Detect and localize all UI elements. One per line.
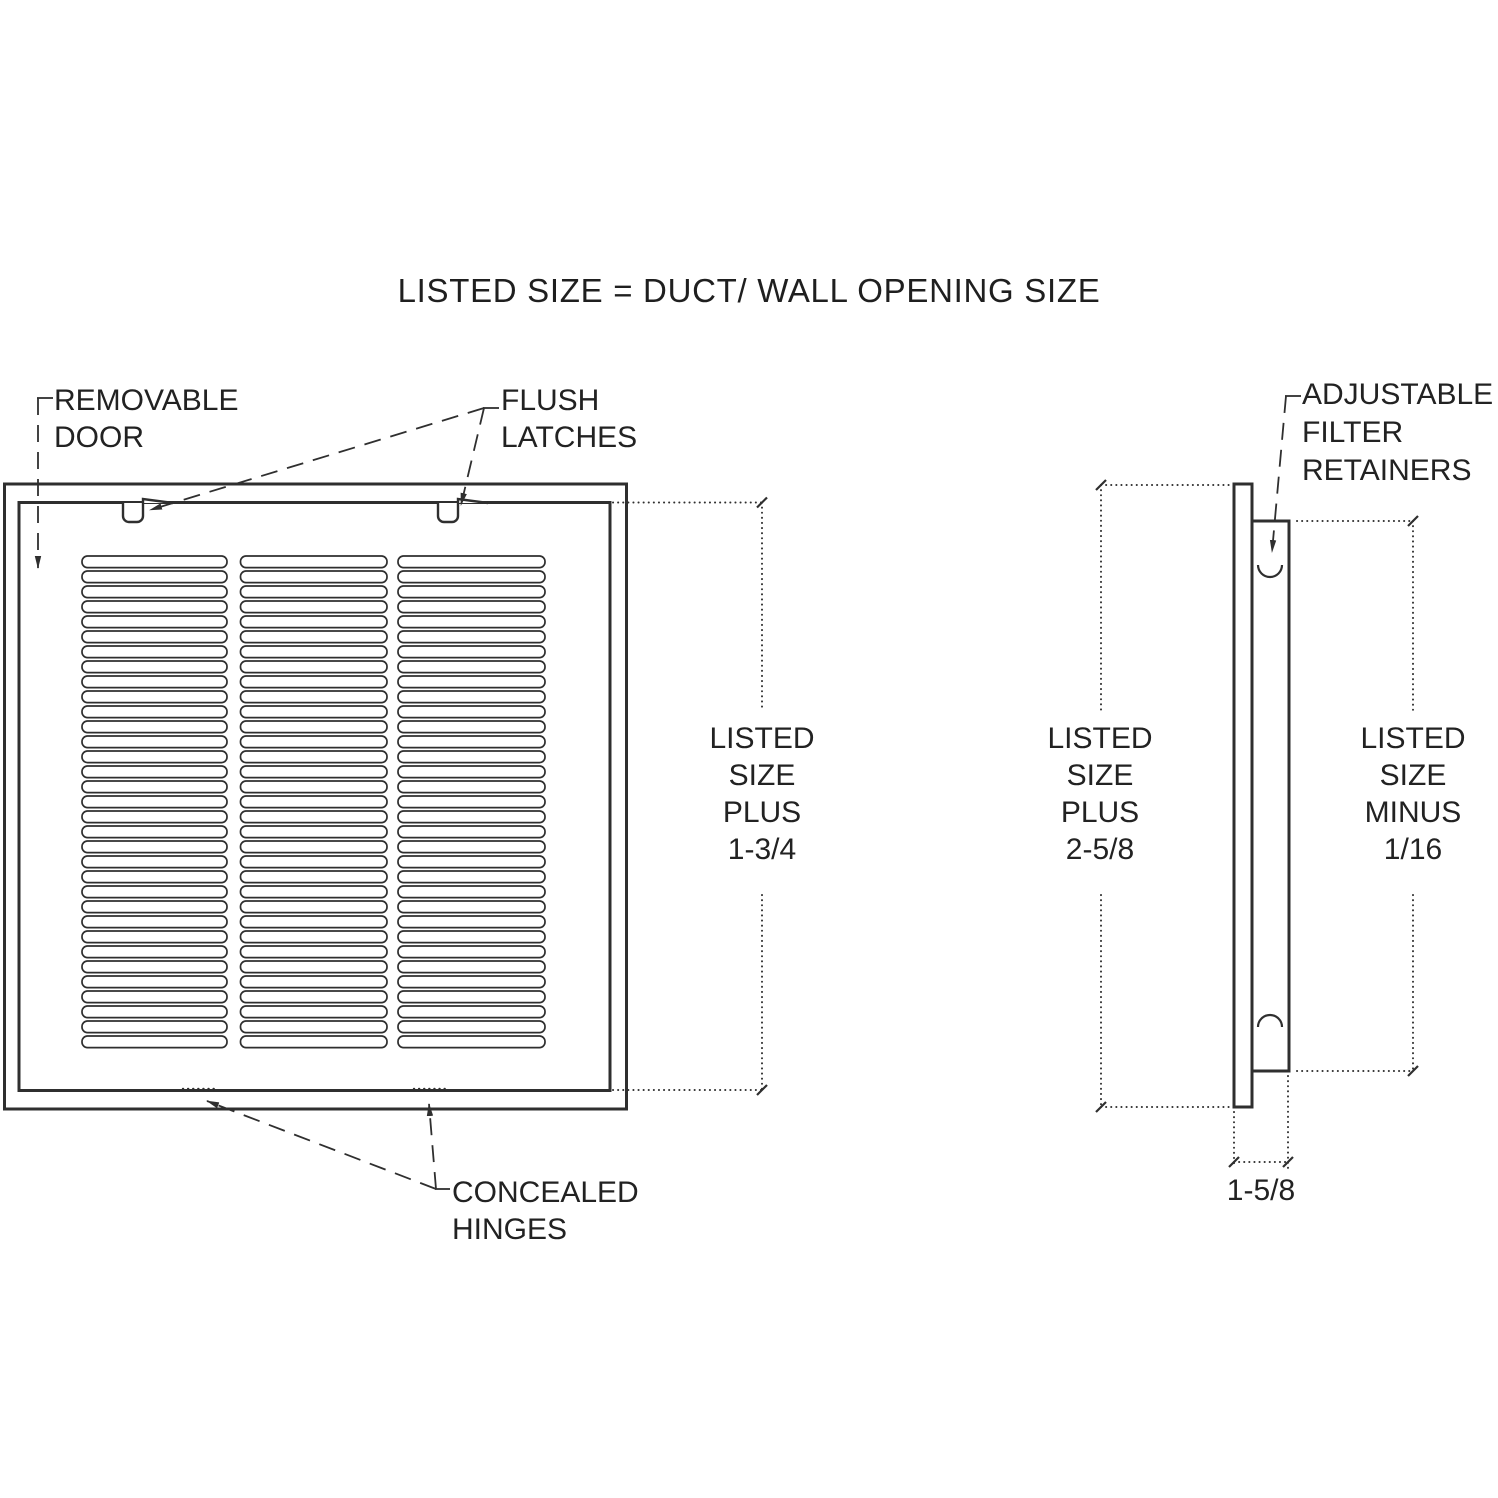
louver-slat [82, 646, 227, 658]
louver-slat [241, 901, 388, 913]
louver-slat [398, 796, 545, 808]
louver-slat [82, 781, 227, 793]
louver-slat [82, 616, 227, 628]
louver-slat [82, 1036, 227, 1048]
louver-slat [241, 706, 388, 718]
side-depth-dimension [1234, 1076, 1288, 1168]
side-filter-dimension-text: LISTED SIZE MINUS 1/16 [1313, 720, 1498, 868]
louver-slat [82, 586, 227, 598]
louver-slat [82, 721, 227, 733]
louver-slat [398, 646, 545, 658]
louver-slat [241, 766, 388, 778]
louver-slat [82, 856, 227, 868]
louver-slat [398, 961, 545, 973]
louver-slat [398, 781, 545, 793]
concealed-hinges-label: CONCEALED HINGES [452, 1174, 639, 1248]
louver-slat [398, 631, 545, 643]
louver-slat [82, 841, 227, 853]
louver-slat [241, 556, 388, 568]
louver-slat [241, 841, 388, 853]
louver-slat [82, 556, 227, 568]
side-depth-dimension-text: 1-5/8 [1211, 1172, 1311, 1209]
louver-slat [398, 811, 545, 823]
louver-slat [398, 691, 545, 703]
louver-slat [398, 856, 545, 868]
louver-slat [398, 556, 545, 568]
louver-slat [82, 826, 227, 838]
louver-slat [82, 736, 227, 748]
louver-slat [82, 931, 227, 943]
louver-slat [398, 916, 545, 928]
louver-slat [241, 976, 388, 988]
side-face-flange [1234, 484, 1252, 1107]
adjustable-retainers-leader [1272, 396, 1286, 552]
side-filter-channel [1252, 521, 1289, 1071]
louver-slat [241, 886, 388, 898]
louver-slat [241, 781, 388, 793]
louver-slat [82, 976, 227, 988]
louver-slat [398, 1021, 545, 1033]
louver-slat [241, 1021, 388, 1033]
louver-slat [398, 586, 545, 598]
louver-slat [82, 1006, 227, 1018]
louver-slat [82, 676, 227, 688]
louver-slat [82, 661, 227, 673]
louver-slat [82, 691, 227, 703]
louver-slat [241, 646, 388, 658]
louver-slat [241, 931, 388, 943]
louver-slat [241, 1006, 388, 1018]
louver-slat [82, 601, 227, 613]
concealed-hinge-leader-left [207, 1101, 436, 1189]
louver-slat [82, 946, 227, 958]
louver-slat [398, 886, 545, 898]
front-height-dimension-text: LISTED SIZE PLUS 1-3/4 [662, 720, 862, 868]
louver-slat [82, 901, 227, 913]
louver-slat [398, 901, 545, 913]
louver-slat [241, 826, 388, 838]
louver-slat [241, 721, 388, 733]
louver-slat [82, 796, 227, 808]
louver-slat [398, 661, 545, 673]
front-view [5, 398, 768, 1189]
louver-slat [398, 706, 545, 718]
technical-diagram-canvas: LISTED SIZE = DUCT/ WALL OPENING SIZE [0, 0, 1498, 1498]
louver-slat [241, 616, 388, 628]
side-overall-dimension-text: LISTED SIZE PLUS 2-5/8 [1000, 720, 1200, 868]
louver-slat [398, 1006, 545, 1018]
louver-slat [82, 991, 227, 1003]
louver-slat [241, 586, 388, 598]
louver-slat [398, 601, 545, 613]
louver-slat [398, 931, 545, 943]
louver-slat [241, 601, 388, 613]
concealed-hinge-leader-right [429, 1104, 436, 1189]
louver-slat [82, 886, 227, 898]
louver-slat [241, 1036, 388, 1048]
louver-slat [241, 736, 388, 748]
flush-latch-leader-right [461, 408, 484, 505]
louver-slat [398, 1036, 545, 1048]
louver-slat [398, 946, 545, 958]
flush-latches-label: FLUSH LATCHES [501, 382, 637, 456]
removable-door-label: REMOVABLE DOOR [54, 382, 239, 456]
louver-slat [82, 961, 227, 973]
louver-slat [241, 946, 388, 958]
louver-slat [82, 706, 227, 718]
louver-slat [398, 676, 545, 688]
louver-slat [241, 661, 388, 673]
louver-slat [241, 991, 388, 1003]
louver-slat [241, 691, 388, 703]
louver-slat [398, 826, 545, 838]
louver-slat [82, 571, 227, 583]
louver-slat [82, 766, 227, 778]
louver-slat [398, 571, 545, 583]
louver-slat [82, 871, 227, 883]
louver-slat [82, 751, 227, 763]
louver-slat [241, 571, 388, 583]
louver-slat [241, 631, 388, 643]
louver-slat [241, 811, 388, 823]
louver-slat [241, 871, 388, 883]
louver-slat [241, 751, 388, 763]
louver-slat [241, 676, 388, 688]
louver-slat [398, 616, 545, 628]
louver-slat [241, 916, 388, 928]
louver-slat [398, 721, 545, 733]
filter-retainer-clip-bottom [1258, 1015, 1282, 1027]
louver-slat [398, 871, 545, 883]
filter-retainer-clip-top [1258, 565, 1282, 577]
louver-slat [241, 961, 388, 973]
louver-slat [398, 736, 545, 748]
louver-slat [398, 841, 545, 853]
louver-slat [82, 1021, 227, 1033]
louver-slat [241, 796, 388, 808]
adjustable-filter-retainers-label: ADJUSTABLE FILTER RETAINERS [1302, 376, 1493, 490]
louver-slat [398, 991, 545, 1003]
louver-slat [82, 811, 227, 823]
louver-slat [398, 766, 545, 778]
louver-slat [398, 751, 545, 763]
louver-slat [241, 856, 388, 868]
louver-slat [82, 631, 227, 643]
louver-grid [82, 556, 545, 1048]
louver-slat [82, 916, 227, 928]
louver-slat [398, 976, 545, 988]
